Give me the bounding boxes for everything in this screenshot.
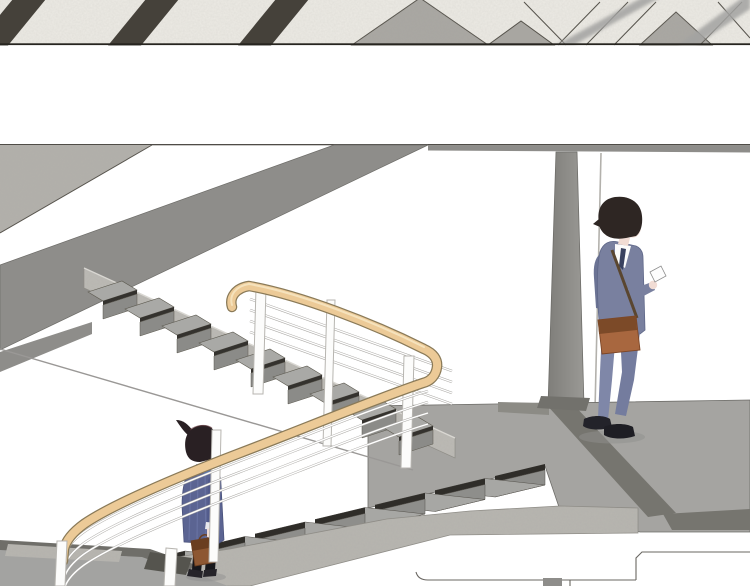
top-panel-border [0, 43, 750, 45]
man-hand [649, 281, 657, 289]
stairwell-illustration [0, 0, 750, 586]
man-hair [598, 197, 642, 239]
support-pillar [537, 152, 590, 411]
panel-gutter [0, 46, 750, 144]
man-shoe-right [604, 424, 635, 439]
woman-shoe-right [203, 569, 217, 577]
panel-stairwell [0, 144, 750, 586]
ceiling-edge [428, 146, 750, 153]
next-panel-outline [416, 552, 750, 586]
woman-ponytail [176, 420, 193, 436]
smartphone [650, 266, 666, 282]
man-hair-spike [593, 219, 600, 227]
outline-pillar-stub [543, 578, 562, 586]
comic-page: Webtoon panel of an office stairwell: a … [0, 0, 750, 586]
panel-tile-floor [0, 0, 750, 46]
railing-post-e [55, 541, 67, 586]
newel-post [164, 548, 177, 586]
